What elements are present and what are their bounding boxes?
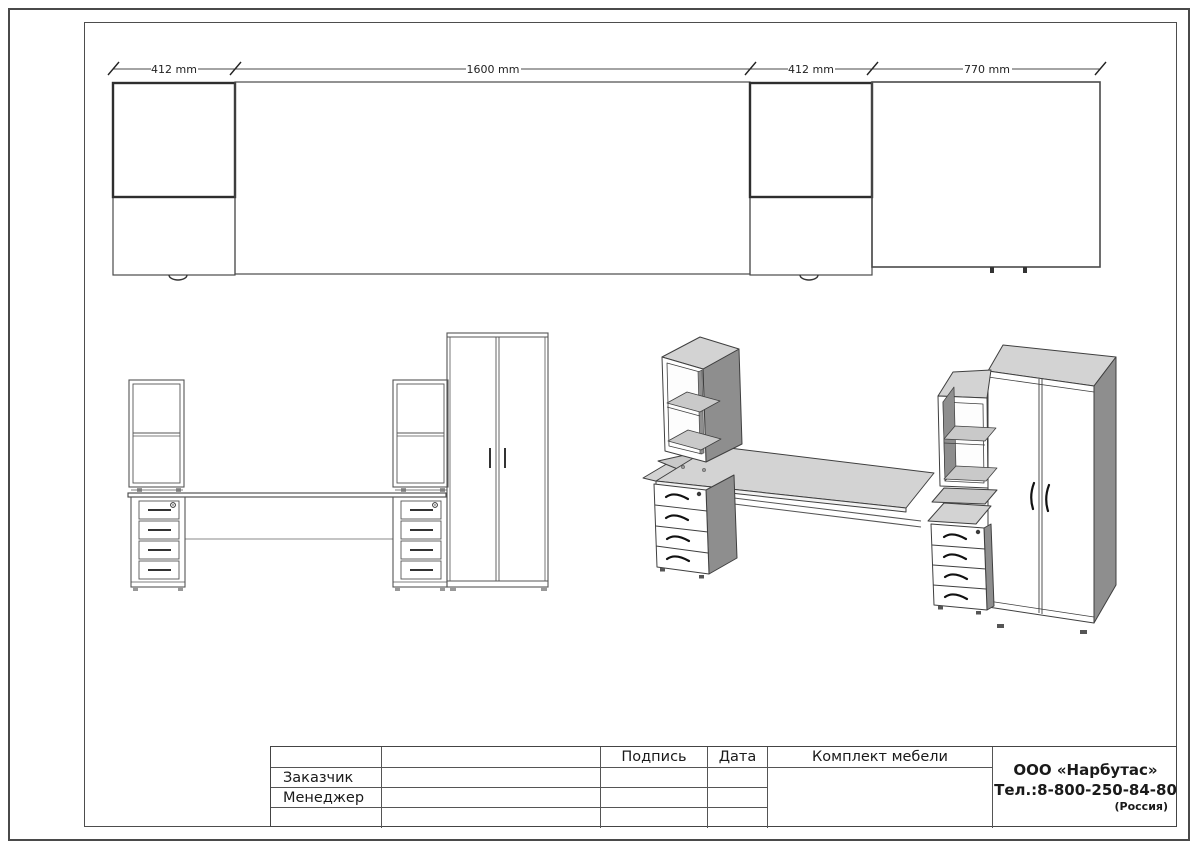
customer-value-cell: [382, 768, 601, 788]
dimension-line: 412 mm 1600 mm 412 mm 770 mm: [108, 62, 1106, 76]
furniture-set-body: [768, 768, 993, 828]
plan-left-unit: [113, 83, 235, 280]
manager-value-cell: [382, 788, 601, 808]
manager-row-label: Менеджер: [271, 788, 382, 808]
plan-desk: [235, 82, 750, 274]
company-phone: Тел.:8-800-250-84-80: [994, 780, 1177, 800]
front-elevation-view: [128, 333, 548, 591]
iso-wardrobe: [988, 345, 1116, 634]
isometric-view: [643, 337, 1116, 634]
furniture-set-header: Комплект мебели: [768, 747, 993, 768]
customer-row-label: Заказчик: [271, 768, 382, 788]
title-block-cell: [271, 747, 382, 768]
elevation-desktop: [128, 493, 446, 497]
plan-wardrobe: [872, 82, 1100, 273]
manager-date-cell: [708, 788, 768, 808]
title-block-cell: [601, 808, 708, 828]
date-header: Дата: [708, 747, 768, 768]
title-block-cell: [271, 808, 382, 828]
elevation-right-shelf-unit: [393, 380, 448, 492]
dimension-label: 770 mm: [964, 63, 1010, 76]
customer-date-cell: [708, 768, 768, 788]
signature-header: Подпись: [601, 747, 708, 768]
plan-view: 412 mm 1600 mm 412 mm 770 mm: [108, 62, 1106, 280]
plan-right-unit: [750, 83, 872, 280]
customer-signature-cell: [601, 768, 708, 788]
company-country: (Россия): [1115, 800, 1179, 815]
company-name: ООО «Нарбутас»: [1013, 760, 1157, 780]
dimension-label: 412 mm: [788, 63, 834, 76]
lock-icon: [697, 492, 701, 496]
drawing-canvas: 412 mm 1600 mm 412 mm 770 mm: [0, 0, 1200, 850]
title-block: Подпись Дата Комплект мебели ООО «Нарбут…: [270, 746, 1177, 827]
title-block-cell: [708, 808, 768, 828]
elevation-left-pedestal: [131, 497, 185, 591]
title-block-cell: [382, 747, 601, 768]
drawing-sheet: 412 mm 1600 mm 412 mm 770 mm: [0, 0, 1200, 850]
title-block-cell: [382, 808, 601, 828]
elevation-wardrobe: [447, 333, 548, 591]
iso-right-unit: [928, 370, 997, 615]
manager-signature-cell: [601, 788, 708, 808]
dimension-label: 412 mm: [151, 63, 197, 76]
company-info: ООО «Нарбутас» Тел.:8-800-250-84-80 (Рос…: [993, 747, 1178, 828]
dimension-label: 1600 mm: [467, 63, 520, 76]
elevation-right-pedestal: [393, 497, 447, 591]
elevation-left-shelf-unit: [129, 380, 184, 492]
lock-icon: [976, 530, 980, 534]
